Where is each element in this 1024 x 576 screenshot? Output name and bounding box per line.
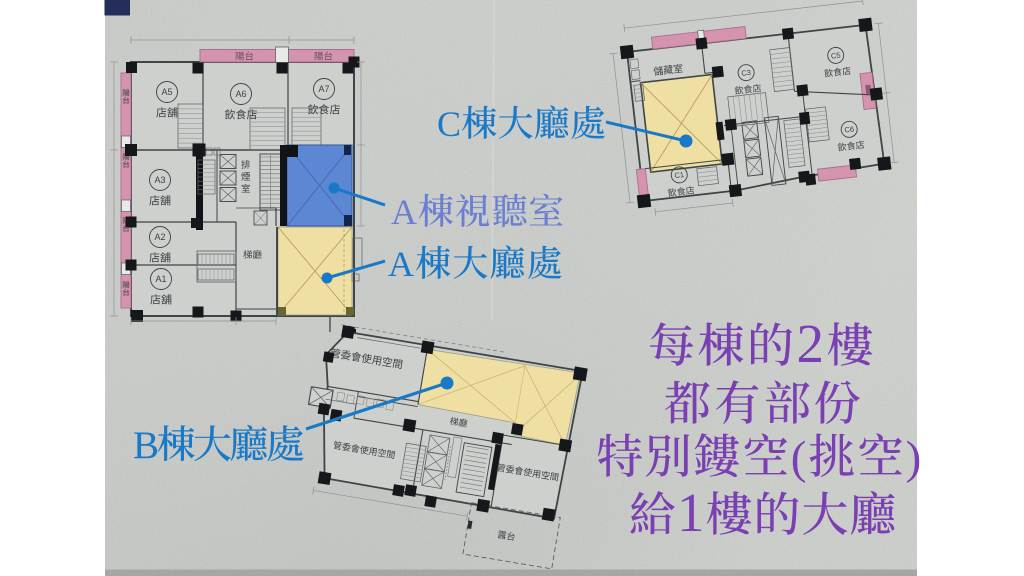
svg-text:A6: A6 [235, 89, 246, 99]
svg-text:(: ( [791, 432, 807, 484]
svg-text:A7: A7 [318, 84, 329, 94]
svg-text:A3: A3 [154, 175, 165, 185]
svg-text:A: A [391, 192, 417, 232]
svg-text:2: 2 [797, 313, 825, 374]
svg-text:C5: C5 [830, 51, 841, 61]
svg-text:A5: A5 [161, 87, 172, 97]
svg-text:A2: A2 [154, 232, 165, 242]
svg-text:C1: C1 [674, 170, 685, 180]
svg-text:C: C [437, 104, 461, 144]
svg-text:1: 1 [677, 482, 705, 543]
svg-text:): ) [906, 432, 922, 484]
svg-text:B: B [133, 424, 159, 467]
svg-text:A: A [388, 244, 414, 284]
svg-text:C6: C6 [844, 125, 855, 135]
svg-text:C3: C3 [741, 68, 752, 78]
svg-text:A1: A1 [155, 274, 166, 284]
